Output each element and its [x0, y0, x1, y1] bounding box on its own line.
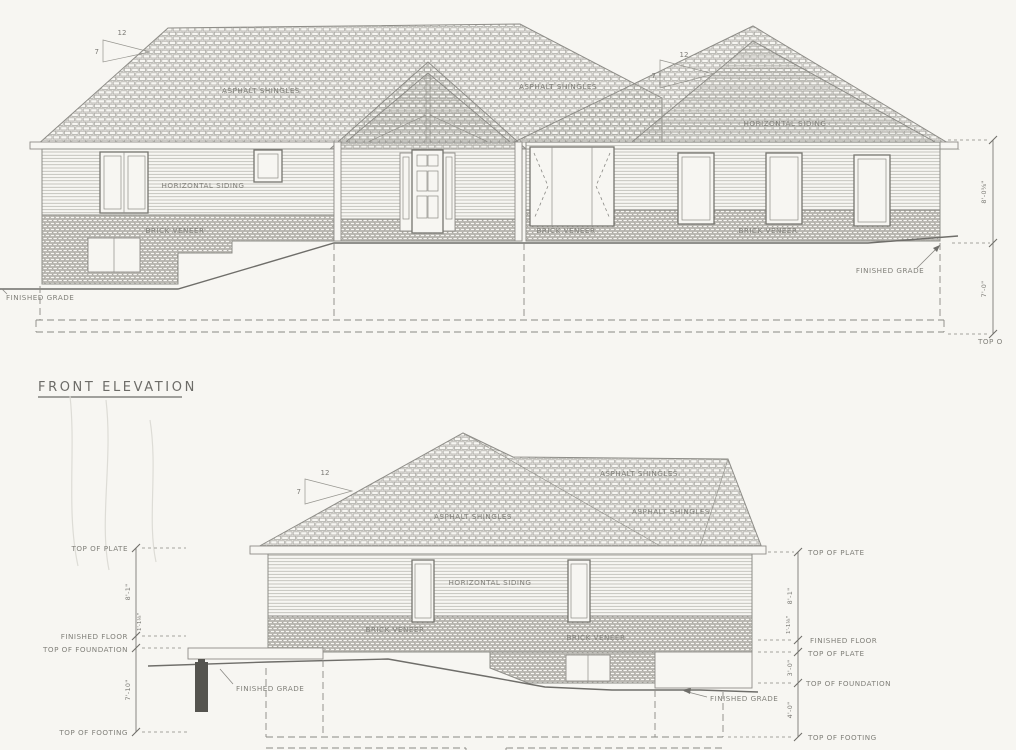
label-brick-veneer: BRICK VENEER	[567, 633, 626, 642]
front-walls	[42, 142, 940, 284]
side-porch	[188, 648, 323, 712]
side-foundation-right	[655, 652, 752, 688]
label-top-of-plate: TOP OF PLATE	[807, 548, 865, 557]
label-finished-grade: FINISHED GRADE	[710, 694, 778, 703]
label-finished-floor: FINISHED FLOOR	[810, 636, 877, 645]
label-asphalt-shingles: ASPHALT SHINGLES	[632, 507, 710, 516]
porch-post	[195, 662, 208, 712]
front-window-3	[854, 155, 890, 226]
front-dim-bottom-clipped-label: TOP O	[977, 337, 1003, 346]
side-window-2	[568, 560, 590, 622]
label-brick-veneer: BRICK VENEER	[739, 226, 798, 235]
front-elevation-title: FRONT ELEVATION	[38, 380, 197, 397]
pitch-run-label: 12	[680, 51, 689, 59]
front-entry-door-unit	[400, 150, 455, 233]
label-asphalt-shingles: ASPHALT SHINGLES	[222, 86, 300, 95]
front-window-2	[766, 153, 802, 224]
label-finished-grade: FINISHED GRADE	[6, 293, 74, 302]
dim-floor-to-plate: 1'-1⅛"	[786, 616, 792, 634]
label-brick-veneer: BRICK VENEER	[366, 625, 425, 634]
dim-floor-to-foundation: 1'-1⅛"	[137, 613, 143, 631]
front-grade-label-left: FINISHED GRADE	[2, 289, 74, 302]
front-elevation-drawing: 8'-0⅝" 7'-0" TOP O 12 7 12 7 ASPHALT SHI…	[0, 24, 1003, 397]
side-dimension-line-left: TOP OF PLATE FINISHED FLOOR TOP OF FOUND…	[42, 544, 190, 737]
label-finished-grade: FINISHED GRADE	[856, 266, 924, 275]
front-basement-window	[88, 238, 140, 272]
label-brick-veneer: BRICK VENEER	[537, 226, 596, 235]
label-finished-grade: FINISHED GRADE	[236, 684, 304, 693]
front-dimension-line-right: 8'-0⅝" 7'-0" TOP O	[948, 136, 1003, 346]
pitch-rise-label: 7	[652, 72, 656, 80]
side-brick-band	[268, 616, 752, 652]
porch-post-right	[515, 142, 522, 241]
side-fascia	[250, 546, 766, 554]
label-horizontal-siding: HORIZONTAL SIDING	[449, 578, 532, 587]
label-top-of-footing: TOP OF FOOTING	[807, 733, 877, 742]
label-horizontal-siding: HORIZONTAL SIDING	[162, 181, 245, 190]
side-walls	[268, 554, 752, 688]
label-brick-veneer: BRICK VENEER	[146, 226, 205, 235]
front-window-small	[254, 150, 282, 182]
dim-plate-to-floor: 8'-1"	[786, 588, 794, 605]
label-top-of-foundation: TOP OF FOUNDATION	[42, 645, 128, 654]
page-title: FRONT ELEVATION	[38, 380, 197, 395]
front-window-1	[678, 153, 714, 224]
side-basement-window	[566, 655, 610, 681]
pitch-rise-label: 7	[95, 48, 99, 56]
side-window-1	[412, 560, 434, 622]
label-finished-floor: FINISHED FLOOR	[61, 632, 128, 641]
side-grade-label-left: FINISHED GRADE	[220, 669, 304, 693]
dim-foundation-to-footing: 7'-10"	[124, 680, 132, 701]
label-asphalt-shingles: ASPHALT SHINGLES	[434, 512, 512, 521]
side-roof	[250, 433, 766, 554]
dim-plate-to-foundation: 3'-0"	[786, 660, 794, 677]
front-door	[412, 150, 443, 233]
porch-post-left	[334, 142, 341, 241]
label-top-of-footing: TOP OF FOOTING	[58, 728, 128, 737]
label-top-of-plate: TOP OF PLATE	[70, 544, 128, 553]
pitch-run-label: 12	[118, 29, 127, 37]
front-dim-wall-height: 8'-0⅝"	[980, 180, 988, 203]
side-elevation-drawing: 12 7	[42, 396, 891, 750]
elevation-drawing-svg: 8'-0⅝" 7'-0" TOP O 12 7 12 7 ASPHALT SHI…	[0, 0, 1016, 750]
front-grade-label-right: FINISHED GRADE	[856, 245, 940, 275]
side-roof-silhouette	[256, 433, 762, 548]
pitch-rise-label: 7	[297, 488, 301, 496]
front-window-double-casement	[100, 152, 148, 213]
front-dim-foundation-depth: 7'-0"	[980, 281, 988, 298]
label-top-of-plate: TOP OF PLATE	[807, 649, 865, 658]
front-picture-window	[530, 147, 614, 226]
label-top-of-foundation: TOP OF FOUNDATION	[805, 679, 891, 688]
blueprint-page: 8'-0⅝" 7'-0" TOP O 12 7 12 7 ASPHALT SHI…	[0, 0, 1016, 750]
label-asphalt-shingles: ASPHALT SHINGLES	[519, 82, 597, 91]
label-horizontal-siding: HORIZONTAL SIDING	[744, 119, 827, 128]
dim-plate-to-floor: 8'-1"	[124, 584, 132, 601]
porch-slab	[188, 648, 323, 659]
label-asphalt-shingles: ASPHALT SHINGLES	[600, 469, 678, 478]
dim-foundation-to-footing: 4'-0"	[786, 702, 794, 719]
pitch-run-label: 12	[321, 469, 330, 477]
